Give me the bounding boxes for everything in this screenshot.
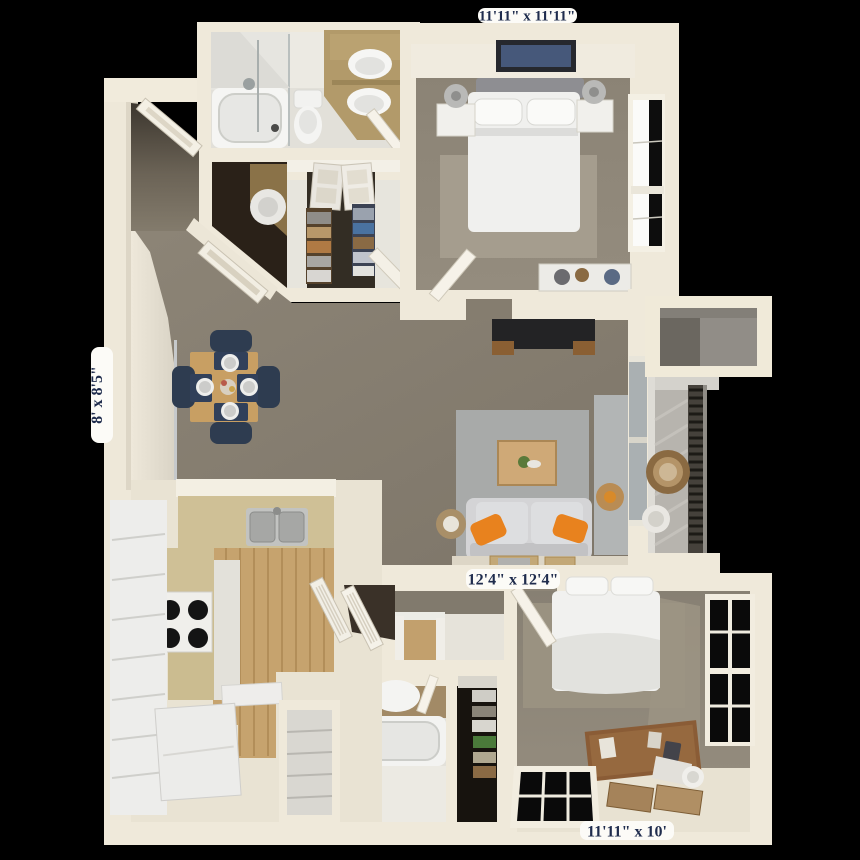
svg-text:11'11" x 10': 11'11" x 10'	[587, 824, 667, 841]
svg-text:8' x 8'5": 8' x 8'5"	[89, 366, 106, 424]
svg-text:11'11" x 11'11": 11'11" x 11'11"	[479, 9, 576, 25]
svg-text:12'4" x 12'4": 12'4" x 12'4"	[468, 572, 559, 589]
